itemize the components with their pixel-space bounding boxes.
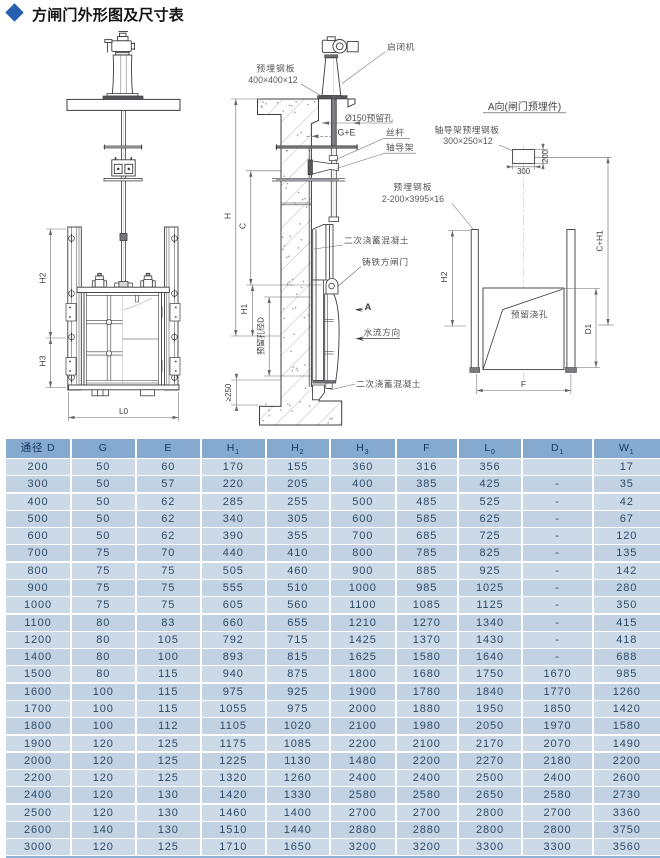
- svg-text:A: A: [365, 302, 372, 313]
- svg-text:400×400×12: 400×400×12: [248, 75, 298, 85]
- svg-text:Ø150预留孔: Ø150预留孔: [345, 112, 393, 123]
- svg-text:丝杆: 丝杆: [386, 127, 405, 138]
- svg-text:预埋钢板: 预埋钢板: [256, 63, 295, 74]
- svg-text:H: H: [223, 213, 233, 219]
- svg-text:水流方向: 水流方向: [364, 327, 401, 338]
- svg-text:H2: H2: [439, 271, 449, 282]
- svg-text:L0: L0: [119, 407, 129, 416]
- svg-text:G+E: G+E: [338, 128, 356, 138]
- svg-text:二次浇蓄混凝土: 二次浇蓄混凝土: [344, 235, 409, 246]
- svg-text:H3: H3: [38, 355, 48, 366]
- svg-text:C+H1: C+H1: [596, 230, 605, 252]
- svg-text:二次浇蓄混凝土: 二次浇蓄混凝土: [356, 378, 421, 389]
- svg-text:D1: D1: [584, 323, 593, 334]
- svg-text:启闭机: 启闭机: [387, 41, 415, 52]
- svg-text:铸铁方闸门: 铸铁方闸门: [362, 256, 409, 267]
- svg-text:≥250: ≥250: [224, 383, 233, 401]
- svg-text:A向(闸门预埋件): A向(闸门预埋件): [488, 100, 561, 113]
- svg-text:轴导架: 轴导架: [386, 142, 414, 153]
- svg-text:200: 200: [541, 149, 550, 163]
- svg-text:预留浇孔: 预留浇孔: [511, 309, 548, 320]
- svg-text:C: C: [238, 223, 248, 229]
- svg-text:轴导架预埋钢板: 轴导架预埋钢板: [434, 124, 499, 135]
- svg-text:预留孔径D: 预留孔径D: [256, 317, 266, 355]
- svg-text:H1: H1: [240, 303, 249, 314]
- svg-text:预埋钢板: 预埋钢板: [393, 181, 432, 192]
- svg-text:H2: H2: [38, 272, 48, 283]
- svg-text:300: 300: [517, 167, 531, 176]
- svg-text:F: F: [521, 379, 526, 389]
- svg-text:300×250×12: 300×250×12: [443, 136, 493, 146]
- svg-text:2-200×3995×16: 2-200×3995×16: [382, 194, 444, 204]
